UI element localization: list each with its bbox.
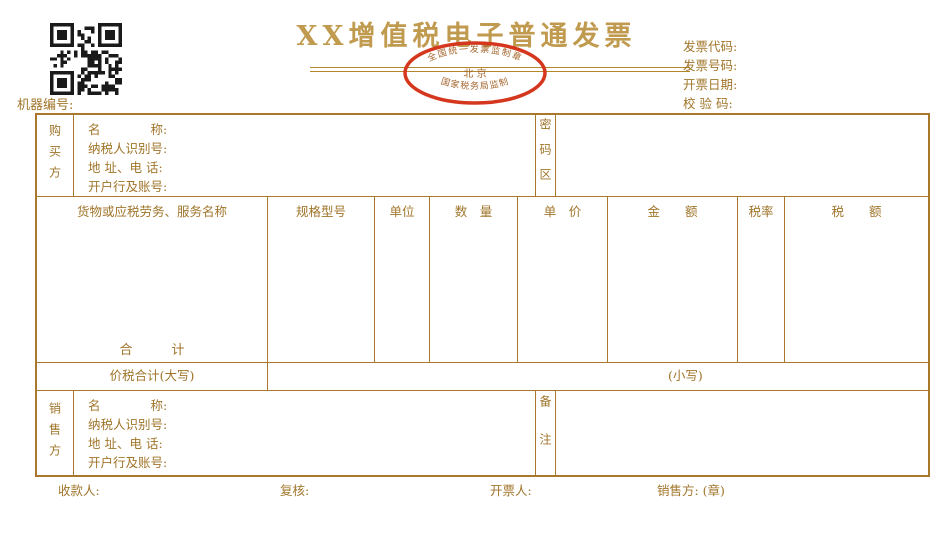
invoice-code-label: 发票代码: (683, 37, 737, 56)
invoice-info-block: 发票代码: 发票号码: 开票日期: 校 验 码: (683, 37, 737, 113)
amount-in-words-label: 价税合计(大写) (37, 363, 268, 390)
invoice-date-label: 开票日期: (683, 75, 737, 94)
buyer-side-label-cell: 购买方 (37, 115, 74, 196)
machine-number-label: 机器编号: (17, 94, 73, 113)
goods-column-amount: 金 额 (608, 197, 738, 362)
seal-center-text: 北 京 (463, 67, 486, 80)
seller-bank-account-label: 开户行及账号: (88, 453, 535, 472)
quantity-header: 数 量 (430, 197, 517, 220)
amount-in-figures-label: (小写) (268, 363, 928, 390)
goods-column-tax-rate: 税率 (738, 197, 785, 362)
seller-side-label: 销售方 (47, 402, 64, 465)
goods-column-tax-amount: 税 额 (785, 197, 928, 362)
unit-header: 单位 (375, 197, 429, 220)
buyer-section: 购买方 名 称: 纳税人识别号: 地 址、电 话: 开户行及账号: 密码区 (37, 115, 928, 197)
unit-price-header: 单 价 (518, 197, 607, 220)
check-code-label: 校 验 码: (683, 94, 737, 113)
buyer-name-label: 名 称: (88, 120, 535, 139)
password-zone-area (556, 115, 928, 196)
reviewer-label: 复核: (280, 480, 309, 499)
buyer-side-label: 购买方 (47, 124, 64, 187)
goods-column-name: 货物或应税劳务、服务名称 合 计 (37, 197, 268, 362)
goods-column-quantity: 数 量 (430, 197, 518, 362)
seller-seal-label: 销售方: (章) (657, 480, 725, 499)
remarks-label: 备注 (537, 395, 554, 471)
password-zone-label-cell: 密码区 (536, 115, 556, 196)
remarks-area (556, 391, 928, 475)
password-zone-label: 密码区 (537, 118, 554, 193)
seller-address-phone-label: 地 址、电 话: (88, 434, 535, 453)
invoice-table: 购买方 名 称: 纳税人识别号: 地 址、电 话: 开户行及账号: 密码区 货物… (35, 113, 930, 477)
invoice-page: XX增值税电子普通发票 全国统一发票监制章 国家税务局监制 北 京 机器编号: … (0, 0, 933, 533)
qr-code (50, 23, 122, 95)
tax-rate-header: 税率 (738, 197, 784, 220)
total-row-label: 合 计 (37, 339, 267, 358)
goods-column-unit-price: 单 价 (518, 197, 608, 362)
spec-model-header: 规格型号 (268, 197, 374, 220)
amount-header: 金 额 (608, 197, 737, 220)
goods-column-spec-model: 规格型号 (268, 197, 375, 362)
remarks-label-cell: 备注 (536, 391, 556, 475)
seller-fields-cell: 名 称: 纳税人识别号: 地 址、电 话: 开户行及账号: (74, 391, 536, 475)
grand-total-section: 价税合计(大写) (小写) (37, 363, 928, 391)
buyer-taxid-label: 纳税人识别号: (88, 139, 535, 158)
seller-side-label-cell: 销售方 (37, 391, 74, 475)
seller-taxid-label: 纳税人识别号: (88, 415, 535, 434)
invoice-number-label: 发票号码: (683, 56, 737, 75)
buyer-address-phone-label: 地 址、电 话: (88, 158, 535, 177)
payee-label: 收款人: (58, 480, 100, 499)
tax-amount-header: 税 额 (785, 197, 928, 220)
buyer-bank-account-label: 开户行及账号: (88, 177, 535, 196)
seller-section: 销售方 名 称: 纳税人识别号: 地 址、电 话: 开户行及账号: 备注 (37, 391, 928, 475)
goods-column-unit: 单位 (375, 197, 430, 362)
goods-name-header: 货物或应税劳务、服务名称 (37, 197, 267, 220)
goods-section: 货物或应税劳务、服务名称 合 计 规格型号 单位 数 量 单 价 金 额 税率 (37, 197, 928, 363)
issuer-label: 开票人: (490, 480, 532, 499)
seller-name-label: 名 称: (88, 396, 535, 415)
supervision-seal-stamp: 全国统一发票监制章 国家税务局监制 北 京 (400, 40, 550, 108)
buyer-fields-cell: 名 称: 纳税人识别号: 地 址、电 话: 开户行及账号: (74, 115, 536, 196)
